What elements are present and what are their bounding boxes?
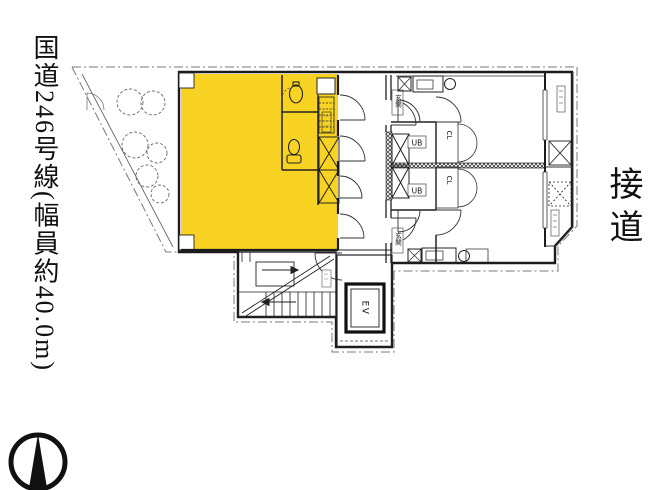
unit-bath-label: UB [412,139,423,148]
balcony [543,72,573,247]
elevator-label: EV [360,301,370,316]
wall-column [179,73,194,88]
small-units: 玄関 玄関 UB UB [386,75,545,263]
planting-area [82,74,173,247]
staircase [238,252,336,317]
wall-column [179,235,194,250]
floorplan: 玄関 玄関 UB UB [0,0,649,490]
unit-bath-lower: UB [398,184,426,232]
kitchen-sink-icon [413,76,443,92]
kitchen-lower [408,248,470,263]
unit-bath-label: UB [412,187,423,196]
unit-entrance-labels: 玄関 玄関 [392,90,403,253]
closet-label: CL [445,176,453,185]
door-arcs [340,95,365,238]
water-heater-box [317,78,335,94]
small-label [322,270,331,287]
kitchen-upper [398,76,456,92]
highlighted-unit [179,73,365,251]
kitchen-sink-icon [422,248,456,263]
ac-unit-icons [549,141,571,206]
door-arc [458,124,477,162]
door-arc [458,169,477,207]
tree-icons [117,89,169,203]
closet-upper: CL [436,122,477,163]
floorplan-page: 国道246号線(幅員約40.0m) 接道 [0,0,649,490]
party-wall [391,163,545,168]
entrance-label: 玄関 [394,231,402,247]
closet-label: CL [445,131,453,140]
elevator: EV [315,250,392,347]
stove-burner-icon [445,79,456,90]
stove-burner-icon [459,251,470,262]
compass-north-icon [11,434,65,489]
closet-lower: CL [436,167,477,208]
